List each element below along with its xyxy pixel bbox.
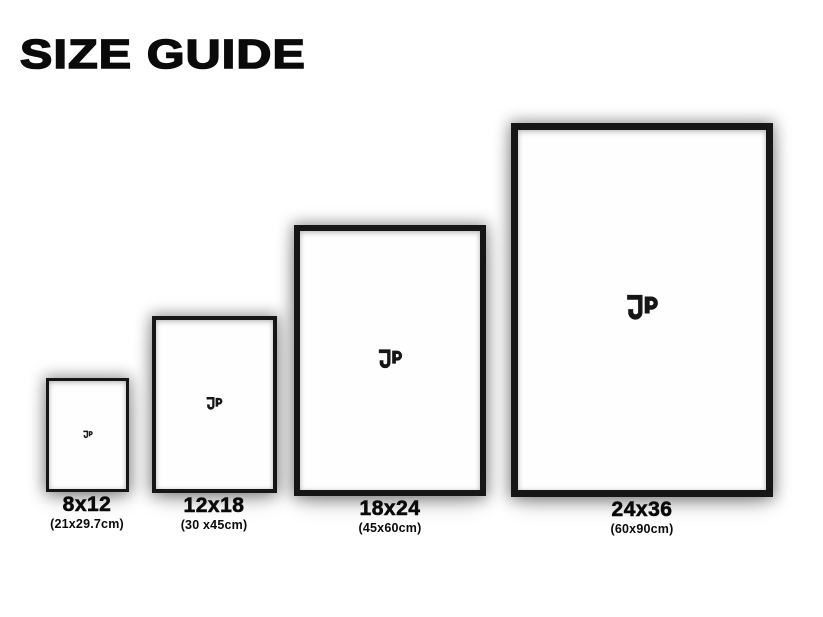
page-title: SIZE GUIDE [20, 31, 306, 78]
size-label: 12x18 [114, 495, 314, 516]
poster-print-18x24 [300, 231, 480, 490]
size-label: 18x24 [290, 498, 490, 519]
poster-frame-18x24 [294, 225, 486, 496]
size-label: 24x36 [542, 499, 742, 520]
jp-logo-icon [626, 293, 659, 322]
frame-label-18x24: 18x24 (45x60cm) [290, 498, 490, 535]
jp-logo-icon [83, 430, 93, 439]
poster-print-8x12 [49, 381, 126, 489]
frame-label-24x36: 24x36 (60x90cm) [542, 499, 742, 536]
poster-frame-8x12 [46, 378, 129, 492]
metric-label: (60x90cm) [542, 523, 742, 536]
metric-label: (45x60cm) [290, 522, 490, 535]
poster-print-12x18 [156, 320, 273, 489]
metric-label: (30 x45cm) [114, 519, 314, 532]
poster-print-24x36 [518, 130, 766, 490]
frame-label-12x18: 12x18 (30 x45cm) [114, 495, 314, 532]
jp-logo-icon [378, 348, 403, 370]
poster-frame-24x36 [511, 123, 773, 497]
size-guide-canvas: SIZE GUIDE 8x12 (21x29.7cm) 12x18 (30 x4… [0, 0, 823, 617]
jp-logo-icon [206, 396, 223, 411]
poster-frame-12x18 [152, 316, 277, 493]
